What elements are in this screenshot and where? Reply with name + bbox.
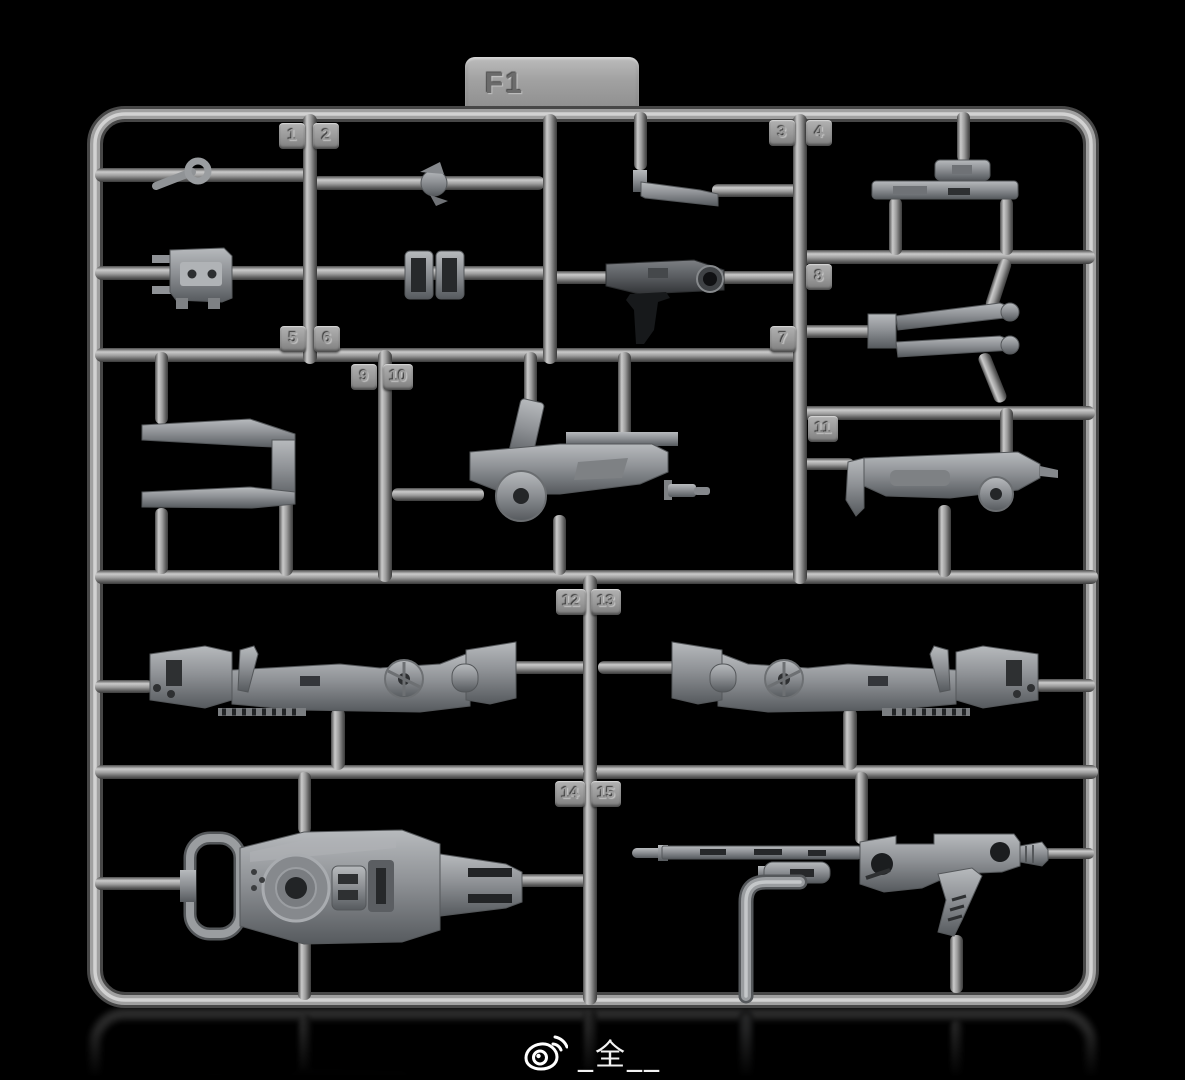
part-number-tag-12: 12 [556, 589, 586, 615]
part-7-pistol-unit [606, 260, 724, 344]
part-9-c-bracket [142, 419, 295, 508]
part-15-rifle [632, 834, 1048, 996]
part-number-tag-7: 7 [770, 326, 796, 352]
watermark: _全__ [524, 1030, 661, 1074]
part-number-tag-15: 15 [591, 781, 621, 807]
part-number-tag-14: 14 [555, 781, 585, 807]
part-number-tag-3: 3 [769, 120, 795, 146]
part-10-smg [470, 398, 710, 521]
part-number-tag-10: 10 [383, 364, 413, 390]
part-number-tag-13: 13 [591, 589, 621, 615]
part-number-tag-5: 5 [280, 326, 306, 352]
watermark-text: _全__ [578, 1030, 661, 1074]
part-13-frame-rail [672, 642, 1038, 716]
part-3-angled-bracket [633, 170, 718, 206]
part-number-tag-4: 4 [806, 120, 832, 146]
part-8-clevis-fork [868, 303, 1019, 357]
part-2-ball-joint [420, 162, 448, 206]
part-number-tag-1: 1 [279, 123, 305, 149]
part-number-tag-9: 9 [351, 364, 377, 390]
part-4-rail-bar [872, 160, 1018, 199]
part-number-tag-6: 6 [314, 326, 340, 352]
sprue-runner [0, 0, 1185, 1080]
weibo-icon [524, 1033, 568, 1071]
part-number-tag-2: 2 [313, 123, 339, 149]
part-11-receiver [846, 452, 1058, 516]
part-14-backpack-unit [180, 830, 522, 944]
part-number-tag-11: 11 [808, 416, 838, 442]
part-number-tag-8: 8 [806, 264, 832, 290]
part-12-frame-rail [150, 642, 516, 716]
photo-model-kit-runner: F1 [0, 0, 1185, 1080]
